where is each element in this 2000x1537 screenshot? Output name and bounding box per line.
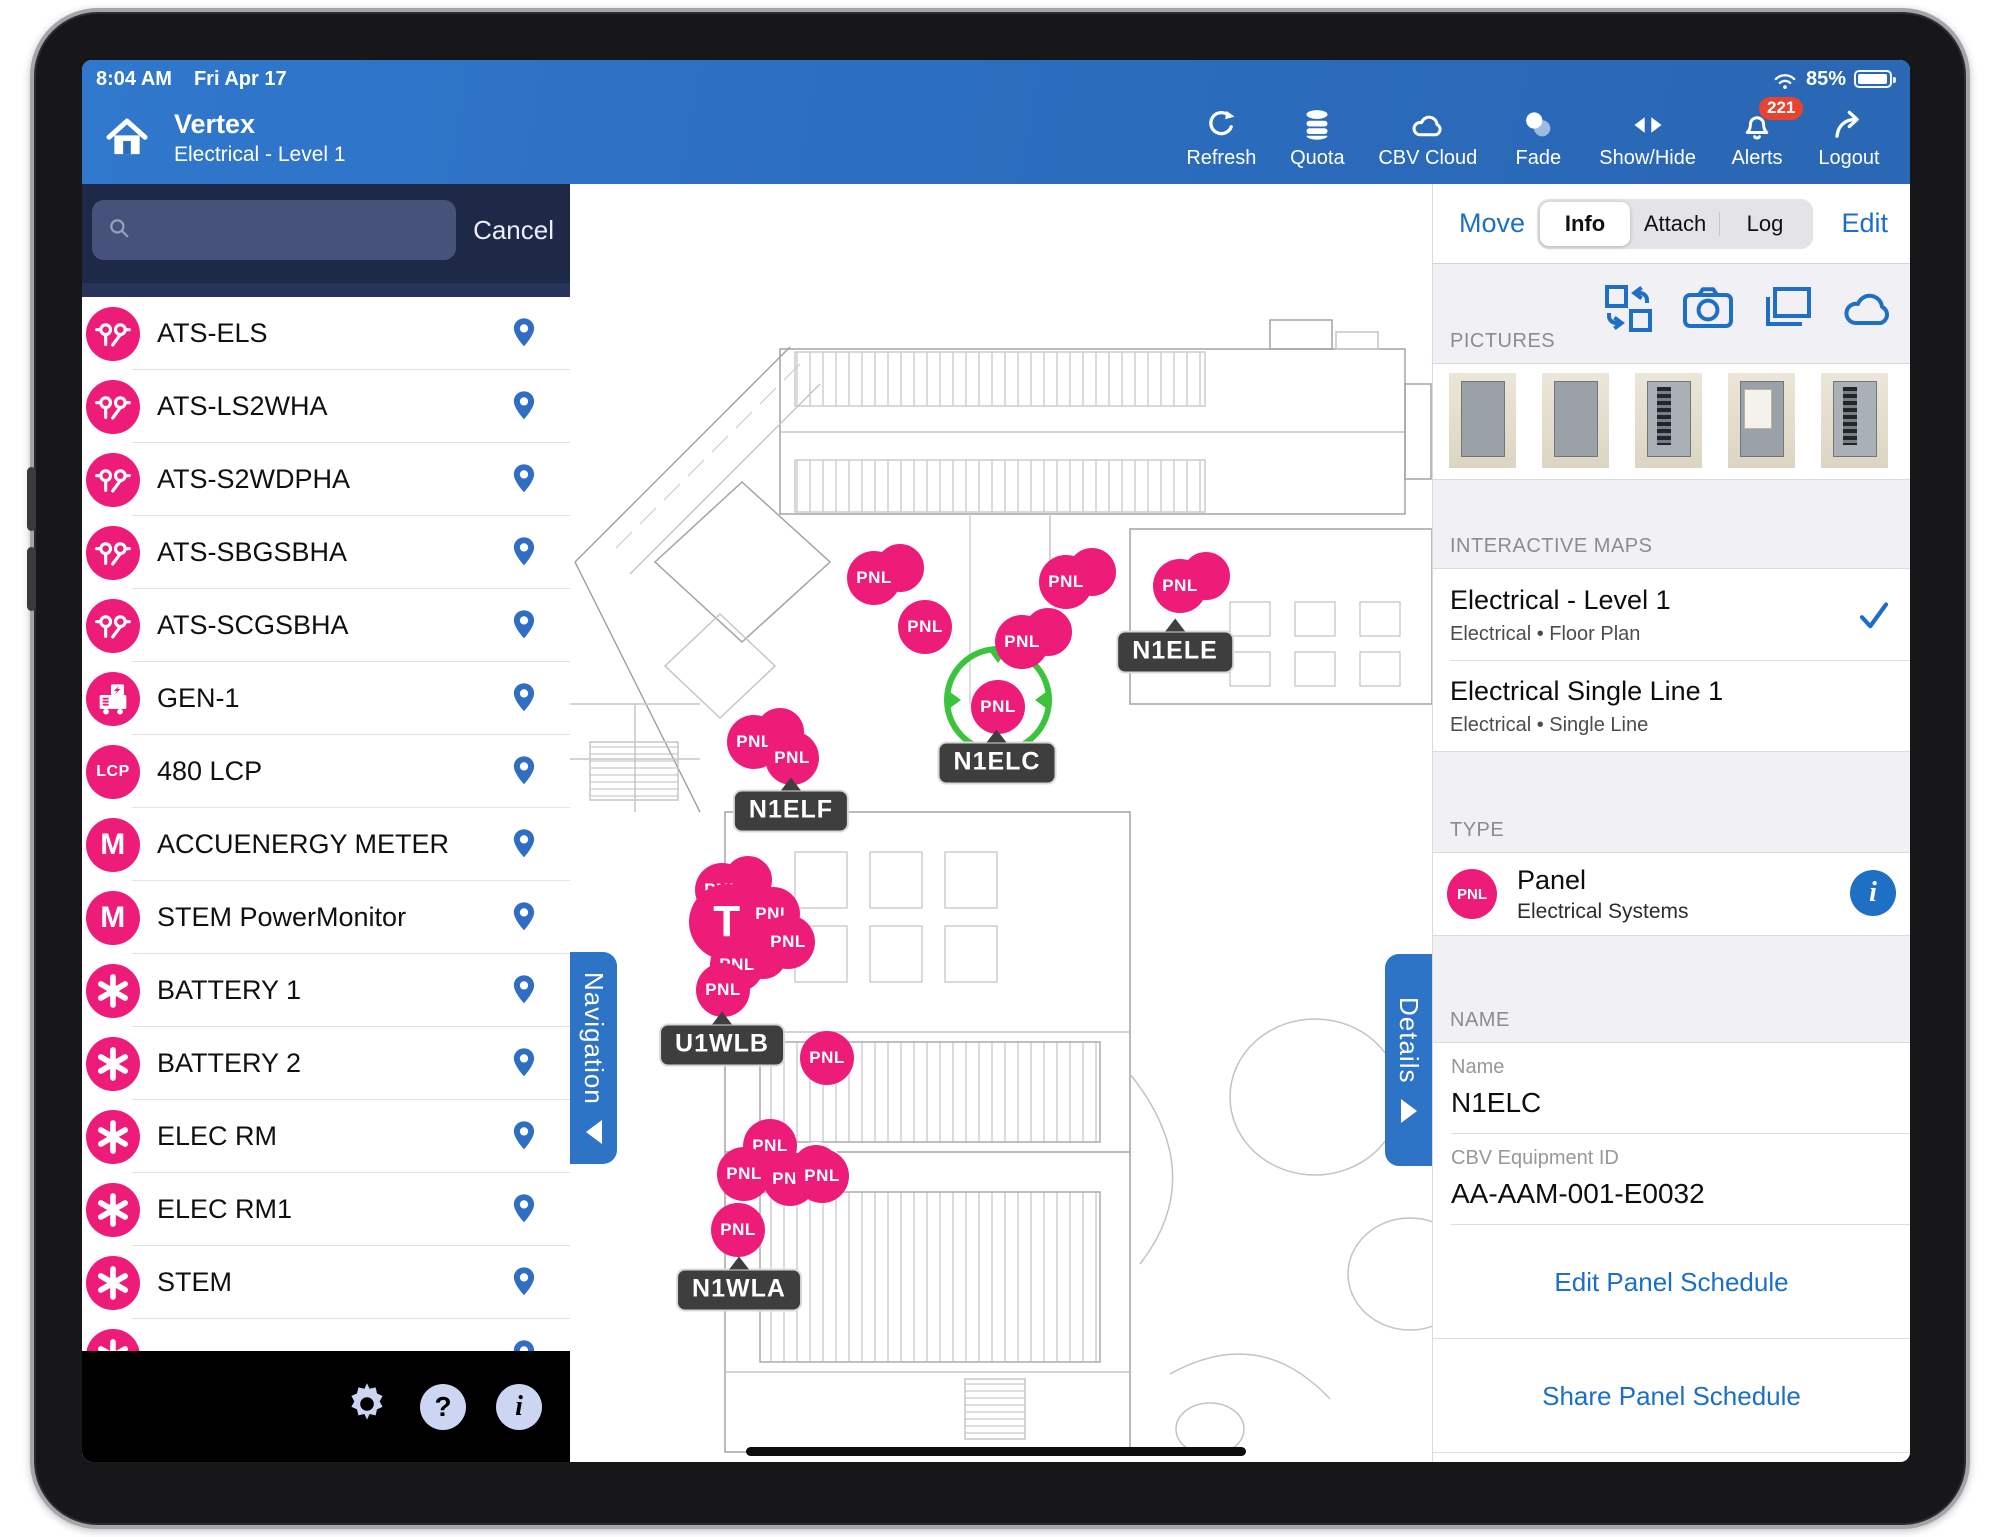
field-row[interactable]: Name N1ELC (1433, 1043, 1910, 1134)
move-button[interactable]: Move (1459, 208, 1525, 239)
picture-thumbnail[interactable] (1449, 373, 1516, 468)
location-pin-icon[interactable] (508, 1119, 540, 1155)
equipment-label: ATS-SBGSBHA (157, 537, 508, 568)
location-pin-icon[interactable] (508, 827, 540, 863)
equipment-row[interactable]: ATS-SCGSBHA (82, 589, 570, 662)
field-label: CBV Equipment ID (1451, 1147, 1894, 1170)
type-section-label: TYPE (1450, 819, 1504, 842)
quota-button[interactable]: Quota (1286, 107, 1348, 170)
volume-down-button (27, 547, 36, 611)
navigation-tab-label: Navigation (578, 972, 609, 1105)
location-pin-icon[interactable] (508, 1265, 540, 1301)
equipment-type-icon (86, 380, 140, 434)
sidebar-footer: ? i (82, 1351, 570, 1462)
location-pin-icon[interactable] (508, 973, 540, 1009)
equipment-type-icon: M (86, 818, 140, 872)
nav-bar: Vertex Electrical - Level 1 Refresh (82, 92, 1910, 184)
battery-percent: 85% (1806, 68, 1846, 91)
panel-tab-bar: Move Info Attach (1433, 184, 1910, 264)
edit-panel-schedule-link[interactable]: Edit Panel Schedule (1554, 1267, 1788, 1298)
cancel-button[interactable]: Cancel (473, 200, 554, 260)
type-title: Panel (1517, 865, 1689, 896)
equipment-label: BATTERY 2 (157, 1048, 508, 1079)
location-pin-icon[interactable] (508, 316, 540, 352)
floor-plan-map[interactable]: PNLPNLPNLPNLPNLPNLPNLPNLTPNLPNLPNLPNLPNL… (570, 184, 1432, 1462)
equipment-row[interactable]: STEM (82, 1246, 570, 1319)
equipment-label: ELEC RM (157, 1121, 508, 1152)
wifi-icon (1772, 68, 1798, 90)
name-fields: Name N1ELC CBV Equipment ID AA-AAM-001-E… (1433, 1043, 1910, 1225)
location-pin-icon[interactable] (508, 462, 540, 498)
map-markers: PNLPNLPNLPNLPNLPNLPNLPNLTPNLPNLPNLPNLPNL… (570, 184, 1432, 1462)
equipment-type-icon (86, 1110, 140, 1164)
map-marker[interactable]: PNL (898, 600, 952, 654)
logout-button[interactable]: Logout (1818, 107, 1880, 170)
location-pin-icon[interactable] (508, 535, 540, 571)
map-callout[interactable]: N1WLA (676, 1269, 802, 1312)
equipment-row[interactable]: M STEM PowerMonitor (82, 881, 570, 954)
pnl-type-icon: PNL (1447, 869, 1497, 919)
picture-thumbnail[interactable] (1728, 373, 1795, 468)
refresh-button[interactable]: Refresh (1186, 107, 1256, 170)
equipment-row[interactable]: BATTERY 2 (82, 1027, 570, 1100)
edit-button[interactable]: Edit (1841, 208, 1888, 239)
page-subtitle: Electrical - Level 1 (174, 143, 346, 167)
screenshot-stage: 8:04 AM Fri Apr 17 85% Vertex Electrical… (0, 0, 2000, 1537)
map-callout[interactable]: N1ELC (938, 742, 1057, 785)
equipment-label: 480 LCP (157, 756, 508, 787)
home-button[interactable] (104, 115, 150, 161)
location-pin-icon[interactable] (508, 900, 540, 936)
type-row[interactable]: PNL Panel Electrical Systems i (1433, 853, 1910, 935)
equipment-row[interactable]: M ACCUENERGY METER (82, 808, 570, 881)
equipment-type-icon (86, 526, 140, 580)
field-value: AA-AAM-001-E0032 (1451, 1178, 1894, 1210)
home-icon (104, 148, 150, 165)
equipment-row[interactable]: LCP 480 LCP (82, 735, 570, 808)
pictures-section-label: PICTURES (1450, 330, 1555, 353)
map-callout[interactable]: U1WLB (659, 1024, 785, 1067)
checkmark-icon (1856, 597, 1892, 633)
interactive-map-row[interactable]: Electrical - Level 1 Electrical • Floor … (1433, 569, 1910, 660)
picture-thumbnail[interactable] (1635, 373, 1702, 468)
home-indicator[interactable] (746, 1447, 1246, 1456)
fade-button[interactable]: Fade (1507, 107, 1569, 170)
app-header: 8:04 AM Fri Apr 17 85% Vertex Electrical… (82, 60, 1910, 184)
info-button[interactable]: i (496, 1384, 542, 1430)
alerts-badge: 221 (1759, 97, 1803, 120)
equipment-row[interactable]: ATS-LS2WHA (82, 370, 570, 443)
equipment-label: ATS-S2WDPHA (157, 464, 508, 495)
equipment-type-icon (86, 453, 140, 507)
picture-thumbnails (1433, 364, 1910, 479)
equipment-label: ACCUENERGY METER (157, 829, 508, 860)
map-marker[interactable]: PNL (847, 551, 901, 605)
equipment-type-icon: LCP (86, 745, 140, 799)
equipment-type-icon (86, 1256, 140, 1310)
details-tab[interactable]: Details (1385, 954, 1432, 1166)
equipment-type-icon (86, 672, 140, 726)
details-panel: Move Info Attach (1432, 184, 1910, 1462)
show-hide-button[interactable]: Show/Hide (1599, 107, 1696, 170)
help-button[interactable]: ? (420, 1384, 466, 1430)
equipment-type-icon (86, 964, 140, 1018)
map-marker[interactable]: PNL (971, 680, 1025, 734)
maps-section-label: INTERACTIVE MAPS (1450, 535, 1652, 558)
equipment-label: STEM (157, 1267, 508, 1298)
segment-tab[interactable]: Attach (1630, 202, 1720, 246)
collapse-right-icon (1401, 1099, 1417, 1123)
equipment-sidebar: Cancel ATS-ELS ATS-LS2WHA (82, 184, 570, 1462)
info-icon: i (515, 1391, 523, 1423)
equipment-type-icon (86, 1183, 140, 1237)
name-section-header: NAME (1433, 935, 1910, 1043)
map-callout[interactable]: N1ELF (733, 790, 849, 833)
collapse-left-icon (586, 1120, 602, 1144)
cbv-cloud-button[interactable]: CBV Cloud (1378, 107, 1477, 170)
pictures-section-header: PICTURES (1433, 264, 1910, 364)
map-callout[interactable]: N1ELE (1116, 631, 1234, 674)
equipment-row[interactable]: GEN-1 (82, 662, 570, 735)
field-value: N1ELC (1451, 1087, 1894, 1119)
maps-section-header: INTERACTIVE MAPS (1433, 479, 1910, 569)
type-subtitle: Electrical Systems (1517, 900, 1689, 924)
search-field[interactable] (92, 200, 456, 260)
camera-button[interactable] (1680, 280, 1736, 336)
field-row[interactable]: CBV Equipment ID AA-AAM-001-E0032 (1433, 1134, 1910, 1225)
location-pin-icon[interactable] (508, 608, 540, 644)
map-marker[interactable]: PNL (995, 615, 1049, 669)
location-pin-icon[interactable] (508, 1192, 540, 1228)
map-marker[interactable]: PNL (711, 1203, 765, 1257)
equipment-row[interactable]: ATS-S2WDPHA (82, 443, 570, 516)
segment-tab[interactable]: Log (1720, 202, 1810, 246)
type-info-button[interactable]: i (1850, 870, 1896, 916)
map-marker[interactable]: PNL (795, 1149, 849, 1203)
battery-icon (1854, 70, 1892, 88)
navigation-tab[interactable]: Navigation (570, 952, 617, 1164)
location-pin-icon[interactable] (508, 681, 540, 717)
location-pin-icon[interactable] (508, 1046, 540, 1082)
status-time: 8:04 AM (96, 68, 172, 91)
edit-panel-schedule-row: Edit Panel Schedule (1433, 1225, 1910, 1339)
equipment-type-icon (86, 1037, 140, 1091)
interactive-maps-list: Electrical - Level 1 Electrical • Floor … (1433, 569, 1910, 751)
map-marker[interactable]: PNL (1153, 559, 1207, 613)
field-label: Name (1451, 1056, 1894, 1079)
search-icon (106, 215, 132, 246)
name-section-label: NAME (1450, 1009, 1510, 1032)
equipment-label: BATTERY 1 (157, 975, 508, 1006)
equipment-label: GEN-1 (157, 683, 508, 714)
info-attach-log-segmented: Info Attach Log (1537, 199, 1813, 249)
search-header: Cancel (82, 184, 570, 297)
info-icon: i (1869, 877, 1877, 909)
location-pin-icon[interactable] (508, 754, 540, 790)
segment-tab[interactable]: Info (1540, 202, 1630, 246)
map-marker[interactable]: PNL (1039, 555, 1093, 609)
volume-up-button (27, 467, 36, 531)
share-panel-schedule-row: Share Panel Schedule (1433, 1339, 1910, 1453)
cloud-pictures-button[interactable] (1840, 280, 1896, 336)
status-date: Fri Apr 17 (194, 68, 287, 91)
toolbar-actions: Refresh Quota (1186, 107, 1910, 170)
interactive-map-row[interactable]: Electrical Single Line 1 Electrical • Si… (1433, 660, 1910, 751)
share-panel-schedule-link[interactable]: Share Panel Schedule (1542, 1381, 1801, 1412)
equipment-label: ATS-LS2WHA (157, 391, 508, 422)
equipment-label: STEM PowerMonitor (157, 902, 508, 933)
equipment-label: ELEC RM1 (157, 1194, 508, 1225)
equipment-type-icon (86, 599, 140, 653)
equipment-type-icon: M (86, 891, 140, 945)
help-icon: ? (434, 1391, 451, 1423)
picture-thumbnail[interactable] (1542, 373, 1609, 468)
status-bar: 8:04 AM Fri Apr 17 85% (82, 60, 1910, 92)
equipment-list: ATS-ELS ATS-LS2WHA ATS-S2WDPHA (82, 297, 570, 1462)
ipad-bezel: 8:04 AM Fri Apr 17 85% Vertex Electrical… (30, 8, 1970, 1529)
photo-library-button[interactable] (1760, 280, 1816, 336)
settings-button[interactable] (344, 1384, 390, 1430)
details-tab-label: Details (1393, 997, 1424, 1083)
equipment-row[interactable]: ELEC RM1 (82, 1173, 570, 1246)
alerts-button[interactable]: 221 Alerts (1726, 107, 1788, 170)
equipment-row[interactable]: ATS-SBGSBHA (82, 516, 570, 589)
equipment-row[interactable]: BATTERY 1 (82, 954, 570, 1027)
map-marker[interactable]: PNL (696, 963, 750, 1017)
type-section-header: TYPE (1433, 751, 1910, 853)
page-title: Vertex (174, 109, 346, 140)
equipment-label: ATS-ELS (157, 318, 508, 349)
location-pin-icon[interactable] (508, 389, 540, 425)
equipment-row[interactable]: ELEC RM (82, 1100, 570, 1173)
picture-thumbnail[interactable] (1821, 373, 1888, 468)
equipment-row[interactable]: ATS-ELS (82, 297, 570, 370)
map-marker[interactable]: PNL (761, 915, 815, 969)
gear-icon (343, 1380, 391, 1433)
search-input[interactable] (142, 216, 452, 244)
map-marker[interactable]: PNL (800, 1031, 854, 1085)
equipment-label: ATS-SCGSBHA (157, 610, 508, 641)
replace-picture-button[interactable] (1600, 280, 1656, 336)
equipment-type-icon (86, 307, 140, 361)
app-screen: 8:04 AM Fri Apr 17 85% Vertex Electrical… (82, 60, 1910, 1462)
